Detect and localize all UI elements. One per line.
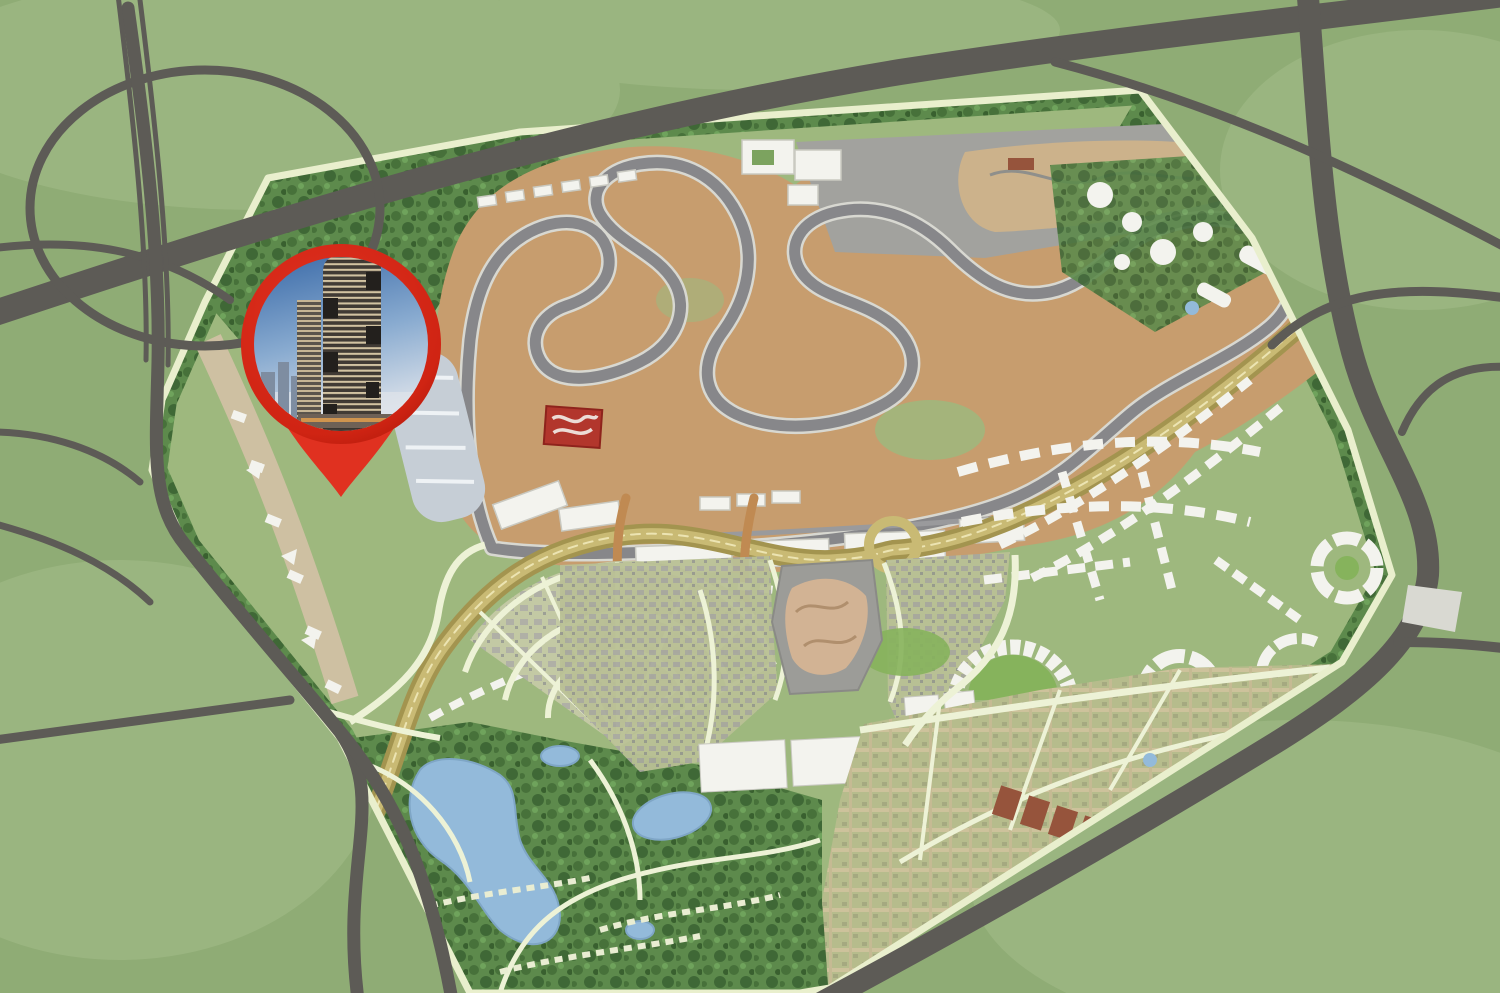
pond-suburb-1 [1143,753,1157,767]
side-tower [297,300,321,422]
red-structure [1008,158,1034,170]
attraction-plot [772,560,882,694]
map-canvas [0,0,1500,993]
masterplan-map [0,0,1500,993]
pond-small [1185,301,1199,315]
courtyard-garden [752,150,774,165]
circuit-logo [544,406,603,448]
